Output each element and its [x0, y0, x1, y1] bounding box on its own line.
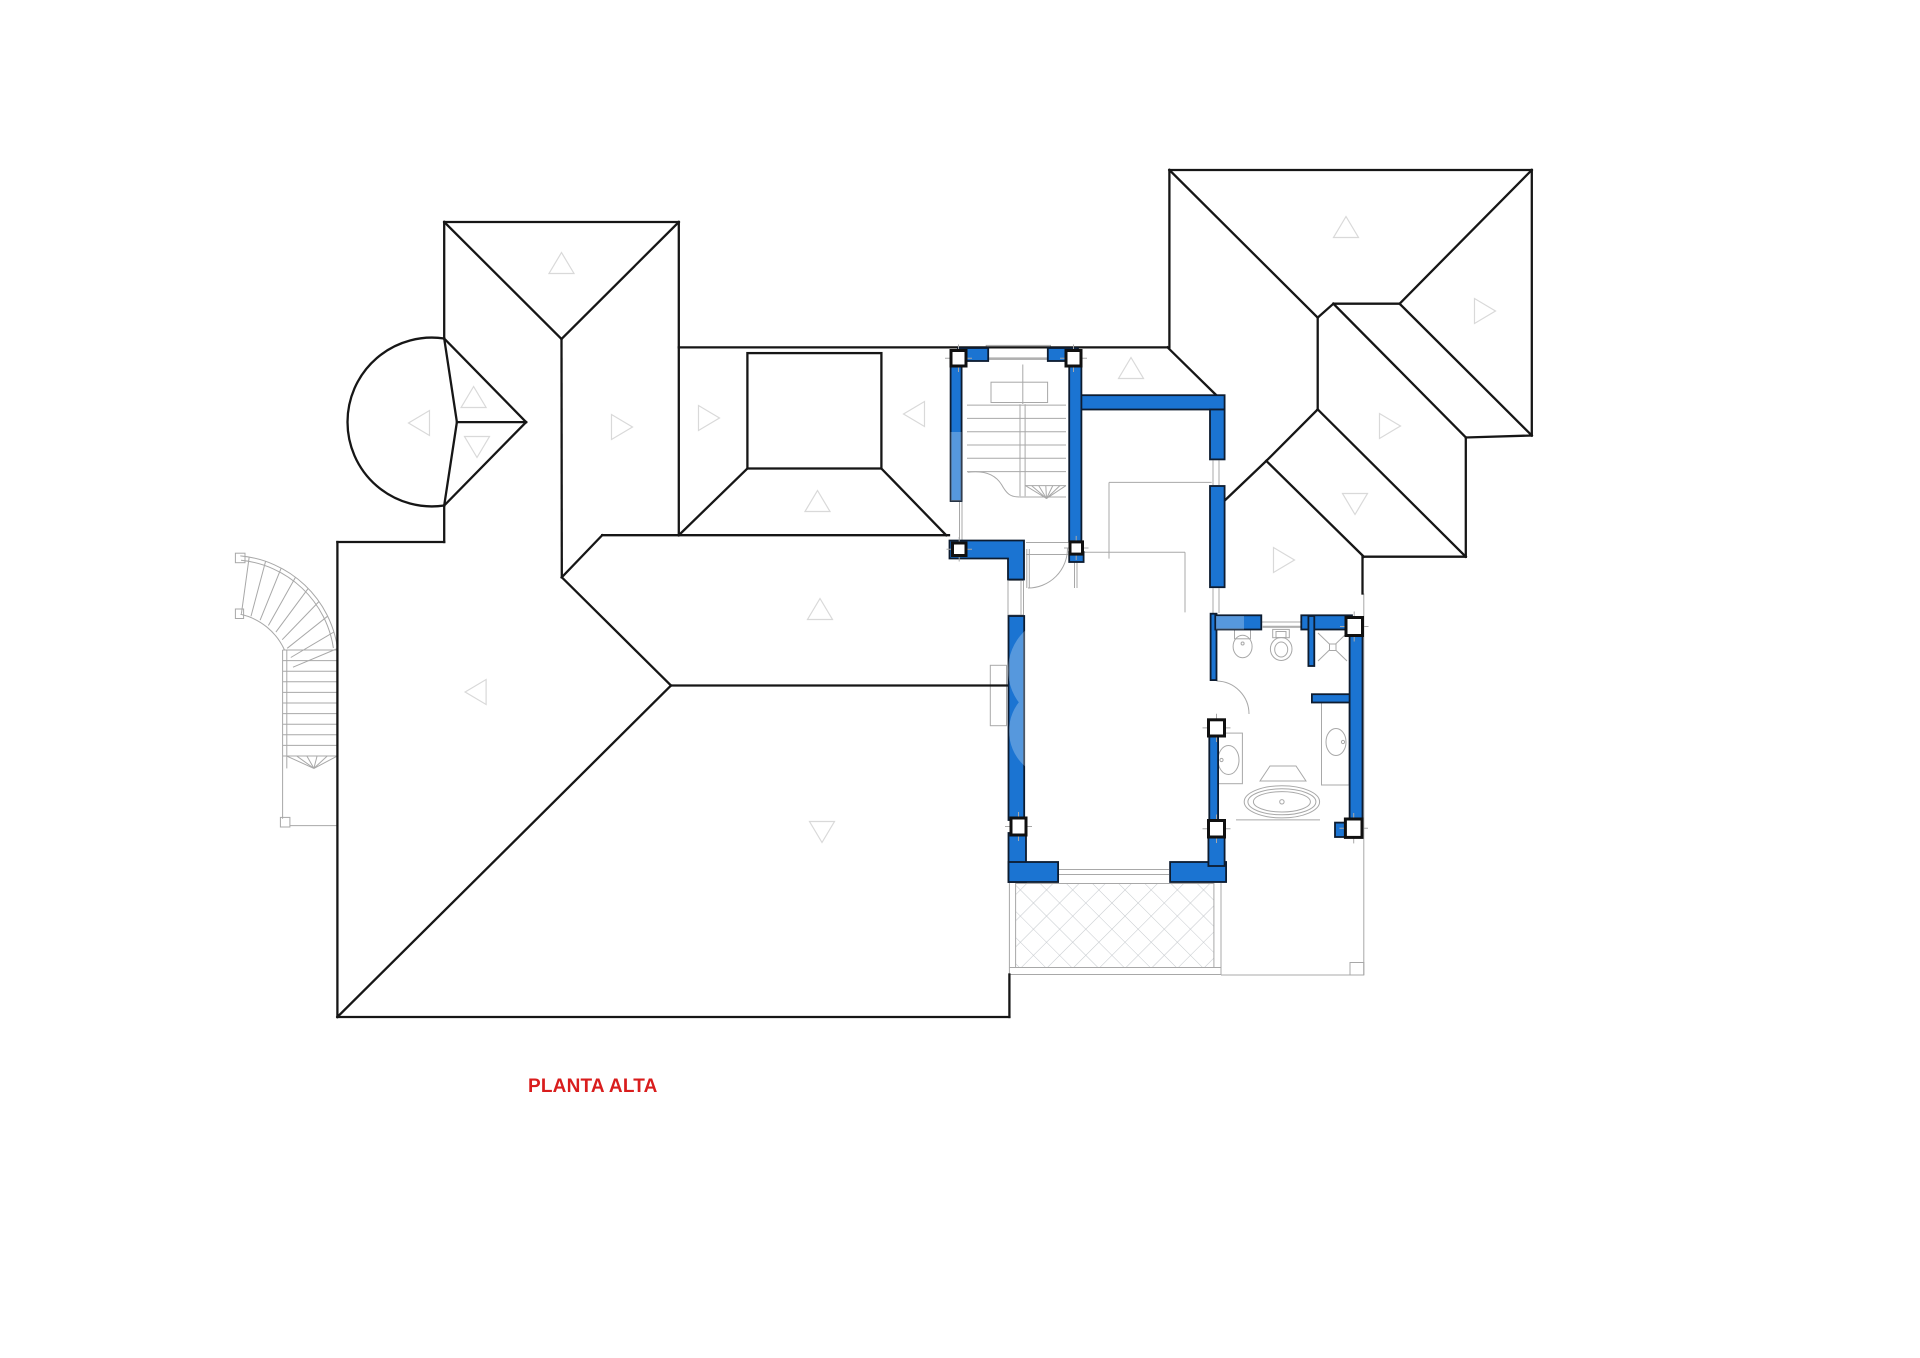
svg-text:PLANTA ALTA: PLANTA ALTA	[528, 1076, 658, 1097]
